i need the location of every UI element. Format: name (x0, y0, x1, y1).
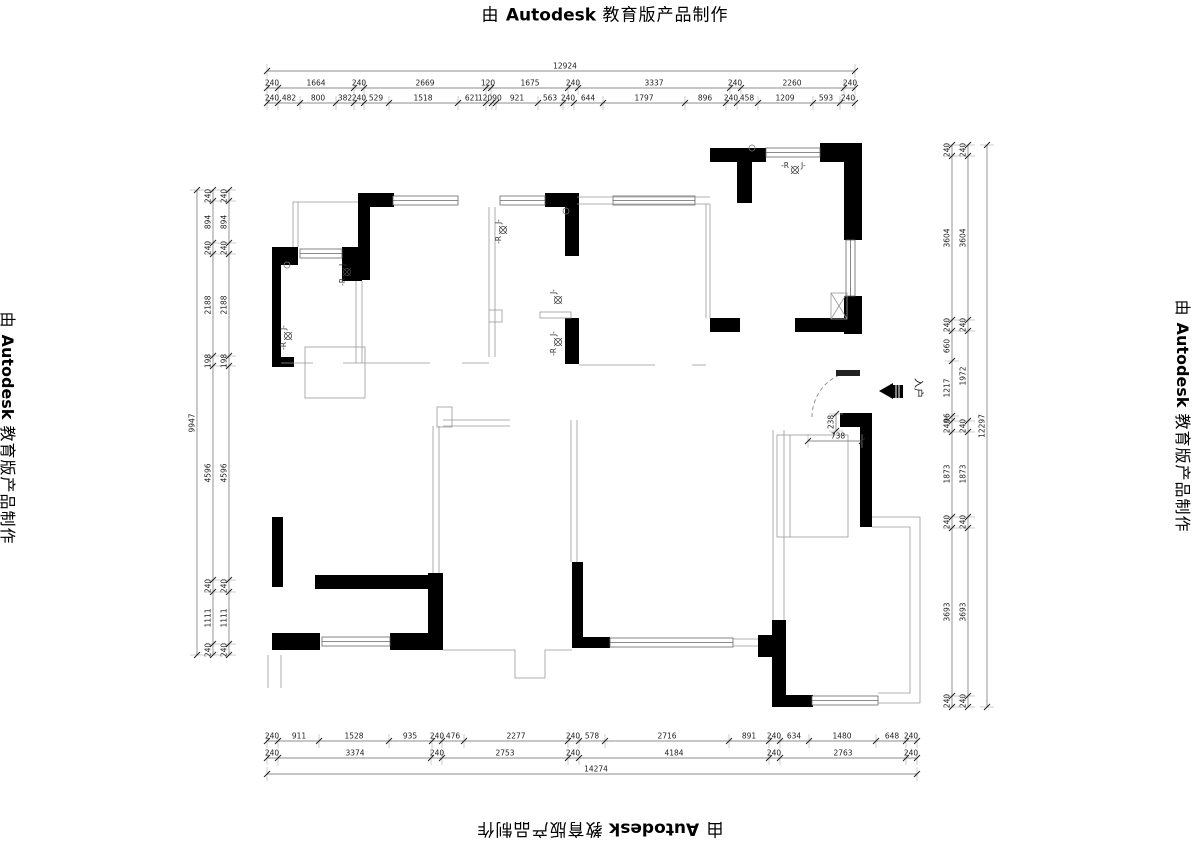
dim-label: 240 (204, 643, 213, 658)
dim-label: 240 (220, 189, 229, 204)
dim-label: 240 (561, 94, 576, 103)
wall-segment (272, 357, 294, 367)
dim-label: 240 (943, 318, 952, 333)
wall-layer (272, 143, 872, 707)
dim-label: 240 (265, 94, 280, 103)
dim-label: 1209 (775, 94, 794, 103)
dim-label: 240 (204, 189, 213, 204)
dim-label: 240 (843, 79, 858, 88)
dim-label: 660 (943, 339, 952, 354)
dim-label: 482 (282, 94, 297, 103)
dim-label: 240 (265, 749, 280, 758)
dim-label: 1797 (634, 94, 653, 103)
window (300, 249, 342, 258)
svg-text:-R: -R (494, 236, 503, 244)
lamp-tag: -R J- (494, 219, 507, 244)
window (322, 637, 390, 646)
dim-label: 240 (430, 749, 445, 758)
window (393, 196, 458, 205)
dim-label: 3374 (345, 749, 364, 758)
dim-label: 240 (204, 579, 213, 594)
svg-text:J-: J- (338, 261, 347, 267)
dim-label: 198 (220, 354, 229, 369)
dim-label: 800 (311, 94, 326, 103)
dim-label: 644 (581, 94, 596, 103)
dim-label: 4184 (664, 749, 683, 758)
wall-segment (844, 162, 862, 240)
dim-label: 240 (220, 643, 229, 658)
dimension-row-bottom-mid: 2403374240275324041842402763240 (264, 749, 920, 766)
dimension-row-top-overall: 12924 (264, 62, 858, 79)
lamp-tag: -R J- (781, 161, 806, 174)
dim-label: 240 (352, 94, 367, 103)
dim-label: 240 (959, 419, 968, 434)
dim-label: 2669 (415, 79, 434, 88)
dim-label: 240 (767, 749, 782, 758)
wall-segment (358, 193, 394, 207)
door-swing-arc (812, 371, 858, 417)
dim-label: 2716 (657, 732, 676, 741)
lamp-tag: J- (549, 289, 562, 304)
dim-label: 240 (566, 732, 581, 741)
dim-label: 240 (204, 241, 213, 256)
dimension-row-left-inner: 240894240218819845962401111240 (220, 187, 237, 658)
dim-label: 2260 (782, 79, 801, 88)
wall-segment (786, 695, 813, 707)
dim-label: 240 (943, 143, 952, 158)
wall-segment (710, 318, 740, 332)
svg-text:-R: -R (338, 278, 347, 286)
wall-segment (315, 575, 428, 589)
dim-label: 3693 (943, 602, 952, 621)
dim-label: 648 (885, 732, 900, 741)
dim-label: 1873 (943, 464, 952, 483)
dim-label: 1664 (306, 79, 325, 88)
dim-label: 240 (943, 419, 952, 434)
dim-label: 240 (566, 79, 581, 88)
dim-label: 476 (446, 732, 461, 741)
dim-label: 2763 (833, 749, 852, 758)
dim-label: 1675 (520, 79, 539, 88)
svg-text:-R: -R (781, 161, 789, 170)
balcony-inner-outline (872, 527, 910, 693)
dim-label: 4596 (220, 463, 229, 482)
svg-text:J-: J- (494, 219, 503, 225)
step-outline (443, 650, 572, 678)
dim-label: 2188 (204, 295, 213, 314)
dim-label: 240 (220, 241, 229, 256)
wall-segment (860, 413, 872, 527)
dim-label: 1518 (413, 94, 432, 103)
dimension-row-bottom-fine: 2409111528935240476227724057827168912406… (264, 732, 920, 749)
shelf-outline (540, 312, 571, 318)
dim-label: 1111 (204, 608, 213, 627)
dim-label: 120 (481, 79, 496, 88)
dim-label: 382 (338, 94, 353, 103)
balcony-outline (872, 517, 920, 703)
dim-label: 1873 (959, 464, 968, 483)
dim-label: 634 (787, 732, 802, 741)
dim-label: 593 (819, 94, 834, 103)
dim-label: 1480 (832, 732, 851, 741)
dim-label: 240 (724, 94, 739, 103)
dim-label: 3693 (959, 602, 968, 621)
entry-label: 入户 (912, 378, 925, 398)
wall-segment (583, 637, 610, 648)
dim-label: 911 (292, 732, 307, 741)
svg-text:J-: J- (279, 325, 288, 331)
dim-label: 738 (831, 432, 846, 441)
entry-marker: 入户 (879, 378, 925, 399)
dimension-row-right-overall: 12297 (978, 142, 995, 710)
dim-label: 240 (352, 79, 367, 88)
cabinet-outline (777, 435, 848, 537)
window (610, 638, 733, 647)
dimension-row-left-outer: 240894240218819845962401111240 (204, 187, 221, 658)
dim-label: 921 (510, 94, 525, 103)
dim-label: 240 (959, 318, 968, 333)
window (500, 196, 545, 205)
dimension-row-entry-door-width: 738 (805, 432, 865, 449)
dim-label: 4596 (204, 463, 213, 482)
dim-label: 896 (698, 94, 713, 103)
cad-plot-page: 由 Autodesk 教育版产品制作 由 Autodesk 教育版产品制作 由 … (0, 0, 1200, 849)
dim-label: 1528 (344, 732, 363, 741)
dim-label: 240 (959, 694, 968, 709)
dim-label: 3604 (943, 228, 952, 247)
wall-segment (572, 562, 583, 648)
dim-label: 240 (728, 79, 743, 88)
dimension-row-left-overall: 9947 (188, 187, 205, 658)
wall-segment (758, 635, 786, 657)
window-layer (300, 148, 878, 705)
dim-label: 578 (585, 732, 600, 741)
wall-segment (772, 620, 786, 707)
dim-label: 894 (220, 215, 229, 230)
wall-segment (272, 517, 283, 587)
svg-text:-R: -R (279, 342, 288, 350)
dim-label: 240 (841, 94, 856, 103)
dim-label: 240 (904, 749, 919, 758)
svg-text:-R: -R (549, 348, 558, 356)
wall-segment (795, 318, 844, 332)
dim-label: 3337 (644, 79, 663, 88)
dim-label: 563 (543, 94, 558, 103)
window (846, 240, 855, 296)
svg-text:J-: J- (800, 161, 806, 170)
dim-label: 1111 (220, 608, 229, 627)
dim-label: 1217 (943, 378, 952, 397)
dim-label: 240 (430, 732, 445, 741)
dim-label: 935 (403, 732, 418, 741)
dim-label: 12297 (978, 414, 987, 438)
dim-label: 198 (204, 354, 213, 369)
dim-label: 238 (827, 415, 836, 430)
wall-segment (565, 318, 579, 364)
dim-label: 240 (767, 732, 782, 741)
dimension-row-right-outer: 2403604240197224018732403693240 (959, 142, 976, 710)
dim-label: 3604 (959, 228, 968, 247)
dim-label: 240 (566, 749, 581, 758)
dim-label: 9947 (188, 413, 197, 432)
lamp-tag: -R J- (549, 331, 562, 356)
dim-label: 529 (369, 94, 384, 103)
dim-label: 240 (265, 732, 280, 741)
svg-text:J-: J- (549, 331, 558, 337)
dim-label: 2277 (506, 732, 525, 741)
dim-label: 240 (959, 515, 968, 530)
dimension-layer: 1292424016642402669120167524033372402260… (188, 62, 995, 782)
dim-label: 90 (492, 94, 502, 103)
dim-label: 2188 (220, 295, 229, 314)
dim-label: 2753 (495, 749, 514, 758)
wall-segment (358, 207, 370, 280)
dim-label: 240 (265, 79, 280, 88)
wall-segment (737, 148, 752, 203)
dim-label: 14274 (584, 765, 608, 774)
dim-label: 458 (740, 94, 755, 103)
dim-label: 240 (959, 143, 968, 158)
dim-label: 240 (943, 694, 952, 709)
wall-segment (820, 143, 862, 162)
entry-arrow-icon (879, 383, 893, 399)
entry-arrow-tail (893, 385, 903, 398)
window (812, 696, 878, 705)
wall-segment (565, 193, 579, 256)
svg-text:J-: J- (549, 289, 558, 295)
dim-label: 240 (220, 579, 229, 594)
dim-label: 894 (204, 215, 213, 230)
dim-label: 240 (943, 515, 952, 530)
dim-label: 240 (904, 732, 919, 741)
dim-label: 120 (478, 94, 493, 103)
dimension-row-top-fine: 2404828003822405291518621120909215632406… (264, 94, 858, 111)
dimension-row-bottom-overall: 14274 (264, 765, 920, 782)
entry-door (812, 370, 860, 417)
wall-segment (272, 633, 320, 650)
floor-plan-drawing: 入户 -R J- -R J- -R J- (0, 0, 1200, 849)
dim-label: 12924 (553, 62, 577, 71)
ledge-outline (293, 202, 358, 247)
window (766, 148, 820, 157)
dimension-row-right-inner: 240360424066012179624018732403693240 (943, 142, 960, 710)
dim-label: 1972 (959, 366, 968, 385)
dim-label: 891 (742, 732, 757, 741)
wall-segment (428, 573, 443, 650)
door-leaf (836, 370, 860, 376)
